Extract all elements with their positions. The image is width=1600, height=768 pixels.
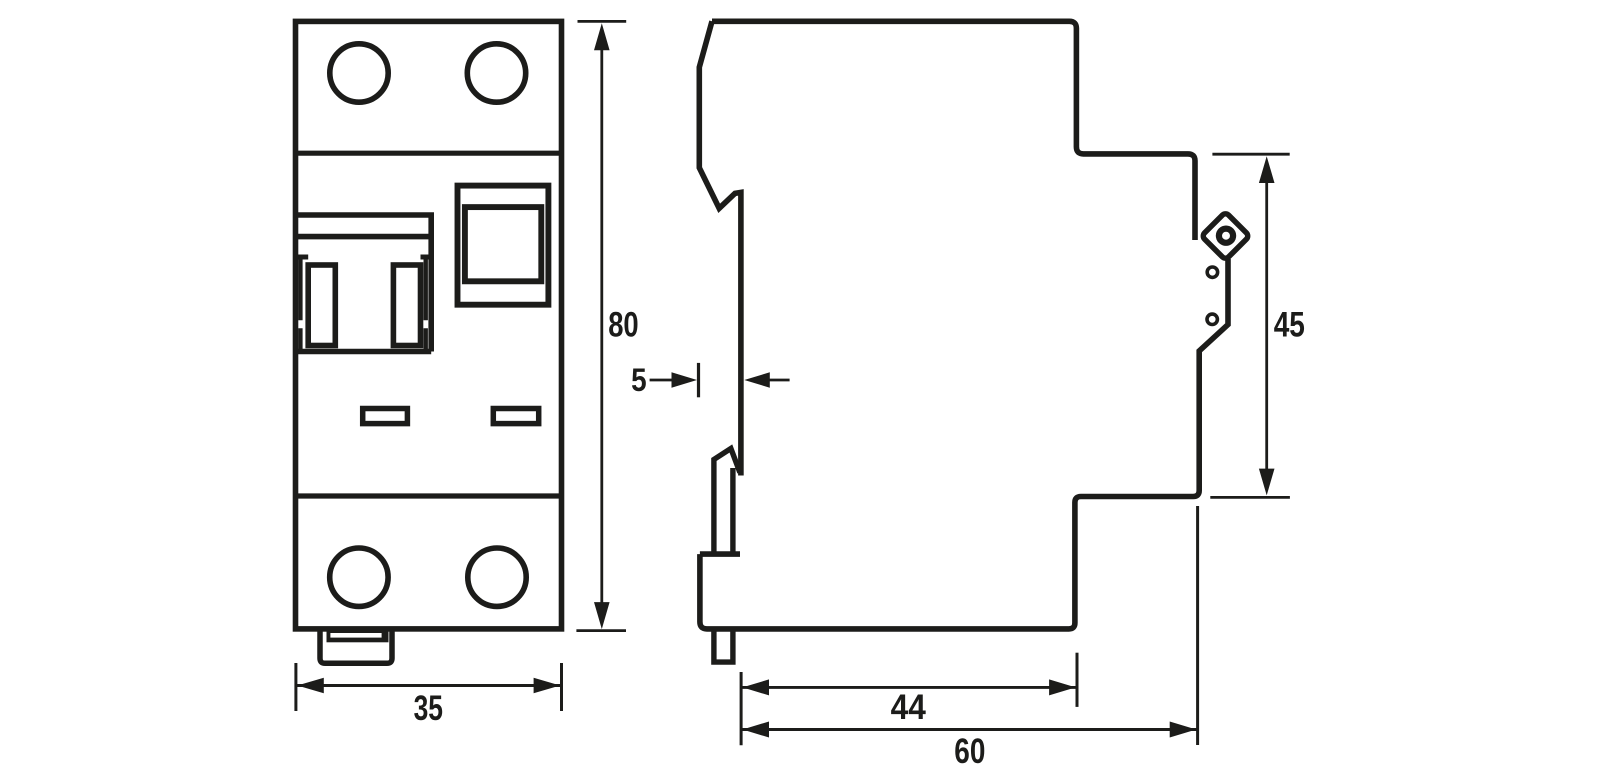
svg-text:80: 80 [608, 304, 639, 344]
svg-text:45: 45 [1274, 304, 1305, 344]
svg-text:44: 44 [891, 687, 926, 727]
svg-text:5: 5 [631, 362, 647, 398]
svg-text:60: 60 [954, 731, 985, 768]
svg-text:35: 35 [414, 688, 443, 728]
